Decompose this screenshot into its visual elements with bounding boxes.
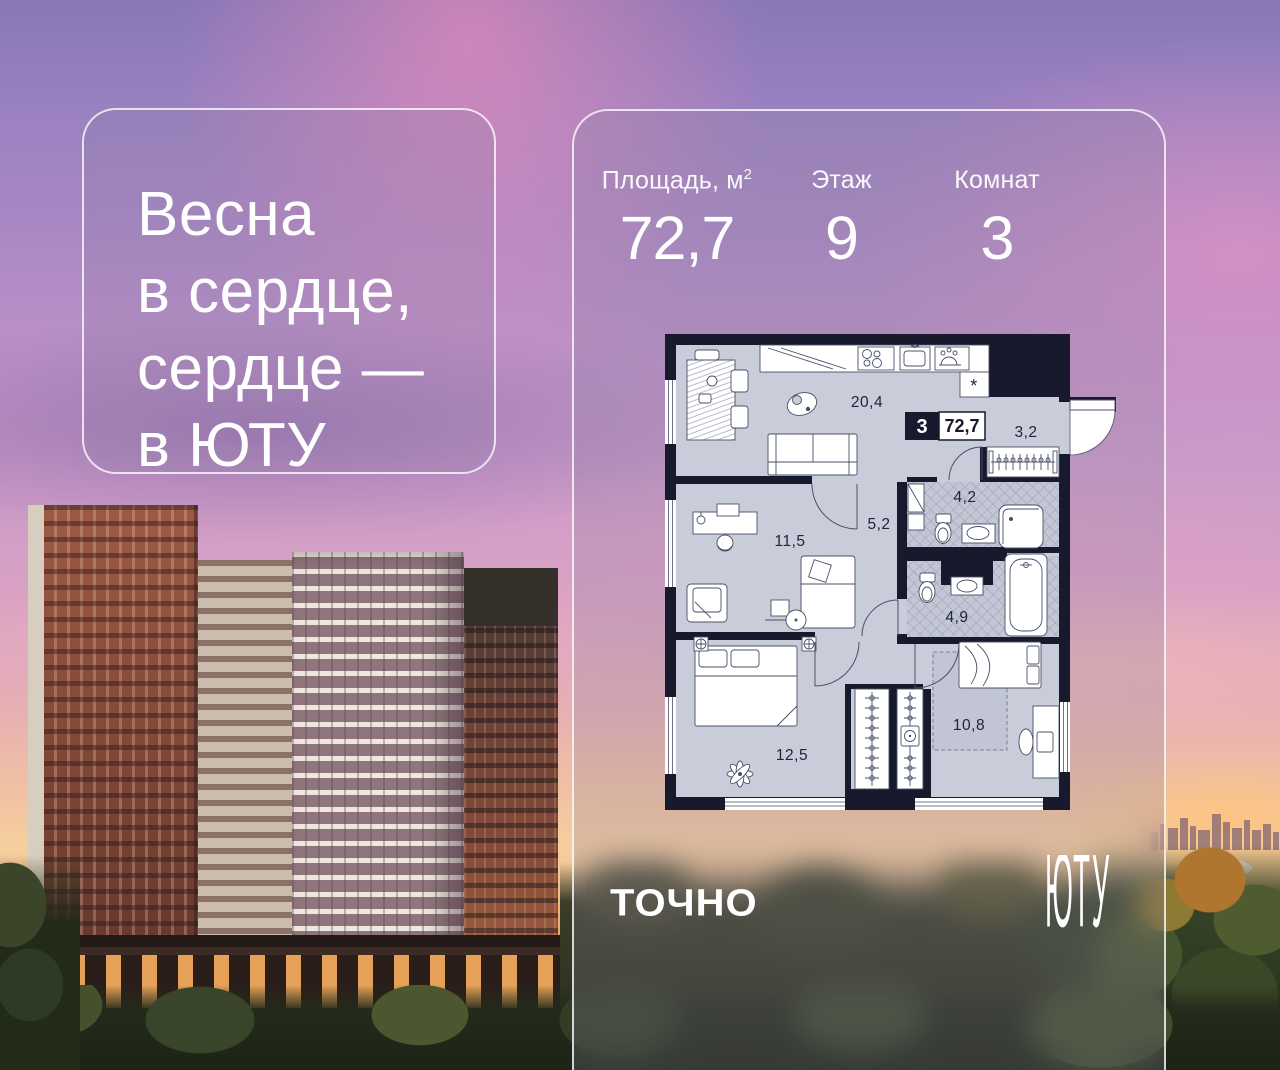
stat-area: Площадь, м2 72,7 [592, 166, 762, 273]
slogan-text: Весна в сердце, сердце — в ЮТУ [137, 176, 424, 484]
label-bath2: 4,9 [945, 609, 968, 626]
stat-floor-label: Этаж [774, 166, 909, 195]
ad-banner: Весна в сердце, сердце — в ЮТУ Площадь, … [0, 0, 1280, 1070]
stat-rooms: Комнат 3 [929, 166, 1065, 273]
project-logo: ЮТУ [1045, 855, 1121, 953]
niche-mark: * [970, 376, 978, 396]
tower-center-banded [292, 552, 464, 1000]
slogan-line: в ЮТУ [137, 407, 424, 484]
label-hall: 3,2 [1014, 424, 1037, 441]
floor-plan: 3 72,7 20,4 3,2 4,2 5,2 11,5 4,9 12,5 10… [665, 334, 1117, 810]
slogan-line: Весна [137, 176, 424, 253]
plan-badge: 3 72,7 [905, 412, 985, 440]
label-living: 20,4 [851, 394, 883, 411]
stat-area-label: Площадь, м2 [592, 166, 762, 195]
stat-area-value: 72,7 [592, 203, 762, 273]
label-corridor: 5,2 [867, 516, 890, 533]
stat-rooms-label: Комнат [929, 166, 1065, 195]
entrance-door [1070, 400, 1115, 455]
badge-area: 72,7 [944, 416, 979, 436]
slogan-line: сердце — [137, 330, 424, 407]
stat-floor-value: 9 [774, 203, 909, 273]
trees-left [0, 855, 80, 1070]
slogan-card: Весна в сердце, сердце — в ЮТУ [82, 108, 496, 474]
project-logo-text: ЮТУ [1045, 855, 1111, 950]
label-bedroom2: 10,8 [953, 717, 985, 734]
city-skyline [1148, 806, 1280, 850]
apartment-card: Площадь, м2 72,7 Этаж 9 Комнат 3 [572, 109, 1166, 1070]
label-bedroom1: 12,5 [776, 747, 808, 764]
slogan-line: в сердце, [137, 253, 424, 330]
label-room: 11,5 [774, 533, 805, 550]
label-bath1: 4,2 [953, 489, 976, 506]
badge-rooms: 3 [916, 416, 927, 438]
stat-floor: Этаж 9 [774, 166, 909, 273]
stat-rooms-value: 3 [929, 203, 1065, 273]
tower-back-light [198, 560, 294, 1000]
developer-logo: ТОЧНО [610, 882, 758, 925]
